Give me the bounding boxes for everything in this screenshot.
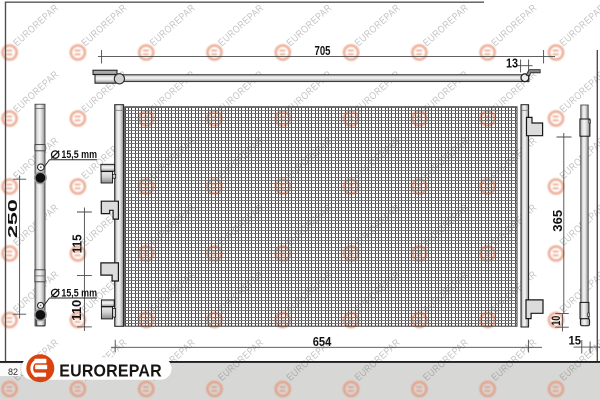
svg-text:EUROREPAR: EUROREPAR (59, 361, 162, 381)
svg-text:365: 365 (551, 210, 565, 232)
svg-text:250: 250 (6, 199, 20, 238)
svg-text:13: 13 (506, 57, 518, 71)
svg-text:654: 654 (313, 334, 332, 349)
svg-text:15: 15 (569, 336, 582, 348)
svg-text:82: 82 (8, 367, 18, 377)
svg-text:110: 110 (70, 300, 84, 321)
svg-text:705: 705 (315, 43, 331, 58)
svg-text:115: 115 (70, 234, 84, 253)
svg-text:10: 10 (551, 316, 563, 326)
